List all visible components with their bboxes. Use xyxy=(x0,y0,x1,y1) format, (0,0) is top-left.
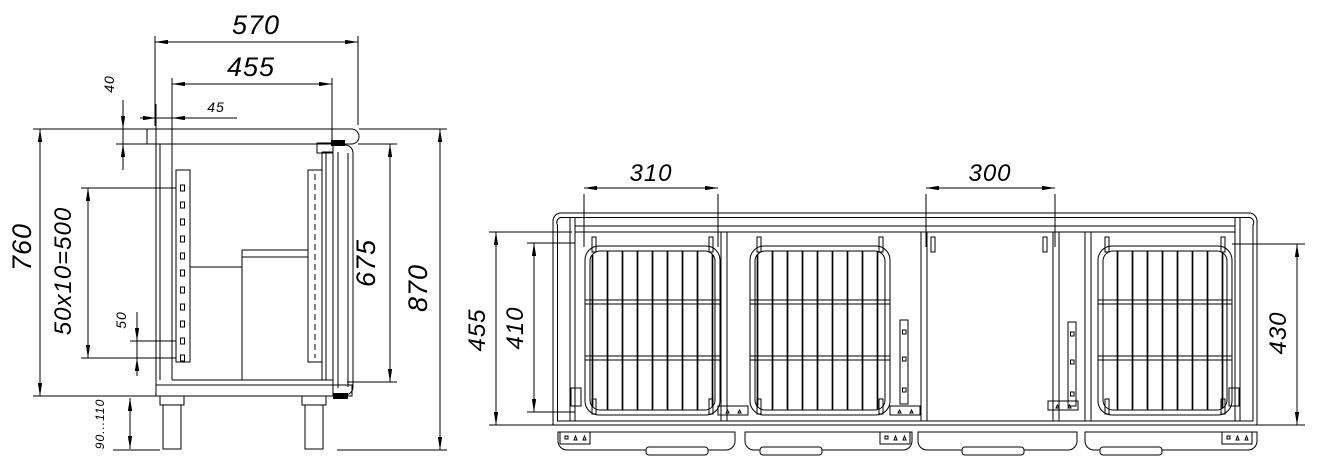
shelf-rail-hidden xyxy=(308,170,322,362)
dim-slot-pitch: 50 xyxy=(113,311,176,376)
hinge-rail-left xyxy=(900,320,908,404)
grid-shelf-1 xyxy=(585,237,720,415)
base-and-legs xyxy=(113,380,447,450)
leg-left xyxy=(163,405,181,449)
dim-label-310: 310 xyxy=(629,160,672,187)
side-view: 570 455 45 40 760 50x10=500 xyxy=(7,10,447,450)
dim-label-300: 300 xyxy=(968,160,1011,187)
dim-label-90-110: 90...110 xyxy=(93,399,107,449)
dim-label-50x10-500: 50x10=500 xyxy=(50,207,77,335)
front-view: 310 300 455 410 430 xyxy=(464,160,1305,455)
dim-label-455-side: 455 xyxy=(227,52,275,82)
dim-label-430: 430 xyxy=(1265,311,1292,354)
door-3-handle xyxy=(962,447,1024,455)
machine-bay-hook-right xyxy=(1043,237,1047,252)
hinge-plate-2 xyxy=(880,432,910,444)
hinge-plate-1 xyxy=(560,432,590,444)
dim-shelf-rail-pitch: 50x10=500 xyxy=(50,188,176,358)
door-section xyxy=(317,140,353,399)
dim-right-opening-height: 430 xyxy=(1232,244,1305,425)
worktop xyxy=(147,129,359,144)
top-hinge xyxy=(331,140,345,146)
dim-door-height: 675 xyxy=(347,144,397,382)
door-1-handle xyxy=(646,447,708,455)
door-2-handle xyxy=(760,447,822,455)
door-4-handle xyxy=(1100,447,1162,455)
dim-label-870: 870 xyxy=(403,264,433,312)
dim-leg-height: 90...110 xyxy=(93,398,130,449)
dim-label-50: 50 xyxy=(113,311,129,329)
dim-worktop-thickness: 40 xyxy=(101,75,147,170)
left-wall xyxy=(156,104,172,385)
dim-label-760: 760 xyxy=(7,223,37,271)
dim-label-45: 45 xyxy=(207,99,225,115)
machine-bay-hook-left xyxy=(931,237,935,252)
hinge-rail-right xyxy=(1068,322,1076,406)
dim-label-40: 40 xyxy=(101,75,117,93)
dim-label-410: 410 xyxy=(502,306,529,349)
leg-right-cap xyxy=(302,396,326,405)
door-panels xyxy=(558,432,1257,455)
technical-drawing-canvas: 570 455 45 40 760 50x10=500 xyxy=(0,0,1319,468)
dimension-drawing: 570 455 45 40 760 50x10=500 xyxy=(0,0,1319,468)
grid-shelf-3 xyxy=(1098,237,1232,415)
hinge-plate-3 xyxy=(1222,432,1252,444)
interior-step xyxy=(190,250,308,380)
dim-overall-height: 870 xyxy=(403,129,440,450)
leg-left-cap xyxy=(160,396,184,405)
dim-shelf-opening-height: 410 xyxy=(502,243,575,412)
dim-label-570: 570 xyxy=(232,10,280,40)
leg-right xyxy=(305,405,323,449)
shelf-rail-slotted xyxy=(176,170,190,362)
dim-machine-bay-width: 300 xyxy=(926,160,1055,247)
dim-shelf-bay-width: 310 xyxy=(584,160,718,247)
grid-shelf-2 xyxy=(750,237,890,415)
dim-body-height: 760 xyxy=(7,129,156,396)
dim-label-675: 675 xyxy=(351,239,381,287)
dim-label-455-front: 455 xyxy=(464,308,491,351)
